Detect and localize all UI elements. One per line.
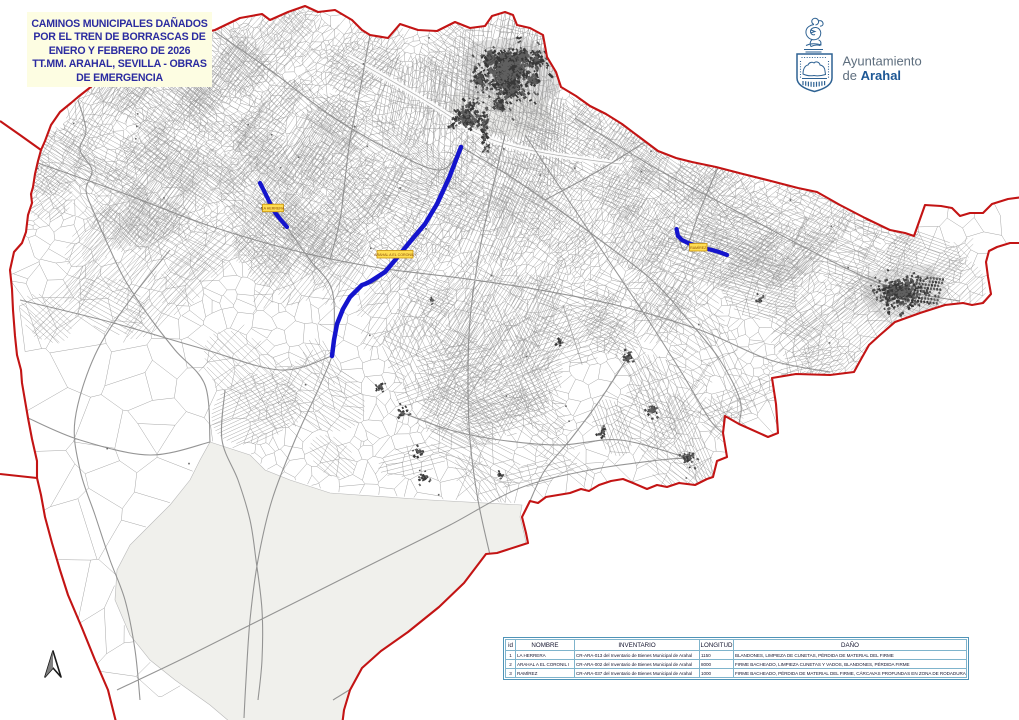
svg-text:de Arahal: de Arahal: [843, 68, 902, 83]
svg-text:RAMÍREZ: RAMÍREZ: [690, 246, 707, 250]
svg-text:ARAHAL A EL CORONIL I: ARAHAL A EL CORONIL I: [374, 253, 416, 257]
svg-text:Ayuntamiento: Ayuntamiento: [843, 54, 922, 69]
svg-text:LA HERRERA: LA HERRERA: [262, 207, 285, 211]
